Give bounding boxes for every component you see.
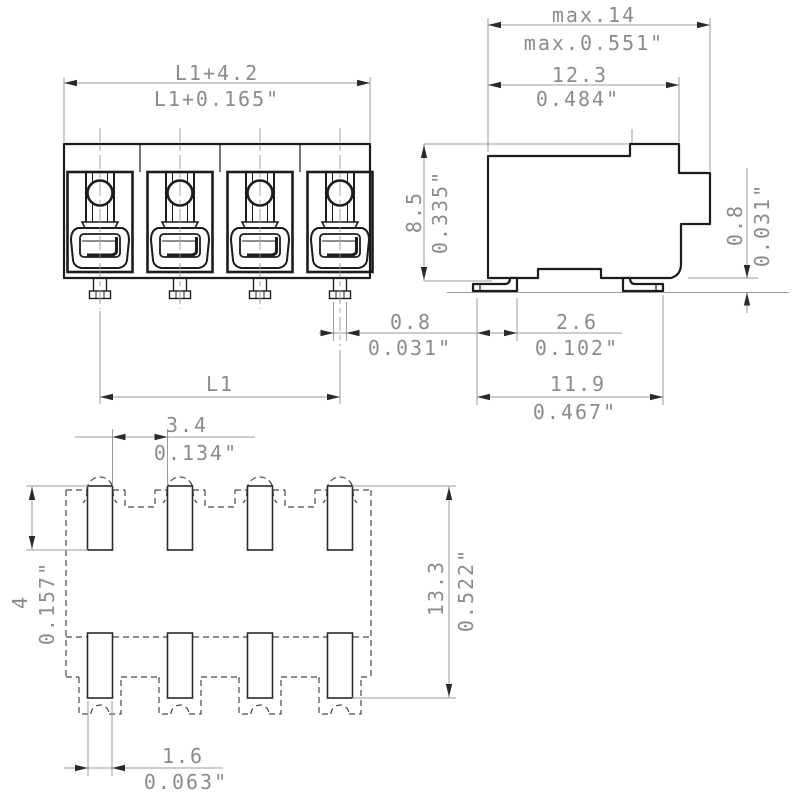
- dim-side-standoff-inch: 0.031": [750, 183, 774, 267]
- fp-pad-top-1: [88, 486, 113, 550]
- dim-side-max-depth-inch: max.0.551": [524, 31, 664, 55]
- front-partition-lines: [140, 144, 300, 172]
- dimension-front-overall: L1+4.2 L1+0.165": [64, 61, 370, 142]
- dim-side-standoff-metric: 0.8: [723, 204, 747, 246]
- drawing-canvas: L1+4.2 L1+0.165" 0.8 0.031" L1: [0, 0, 800, 800]
- front-centerlines: [100, 128, 260, 309]
- dim-front-pin-inch: 0.031": [368, 336, 452, 360]
- dim-side-height-metric: 8.5: [402, 191, 426, 233]
- dim-fp-pad-gap-metric: 3.4: [166, 413, 208, 437]
- fp-notch-2: [205, 490, 235, 507]
- dimension-fp-pad-gap: 3.4 0.134": [75, 413, 255, 486]
- dim-side-foot-width-inch: 0.102": [535, 336, 619, 360]
- fp-pad-bottom-3: [248, 633, 273, 698]
- dimension-front-pin-width: 0.8 0.031": [319, 302, 500, 360]
- footprint-view: 3.4 0.134" 4 0.157" 13.3 0.522" 1.6 0.06…: [8, 413, 478, 794]
- dimension-front-pitch: L1: [100, 311, 340, 404]
- fp-pad-bottom-2: [168, 633, 193, 698]
- side-view: max.14 max.0.551" 12.3 0.484" 8.5 0.335"…: [402, 3, 789, 424]
- dim-side-foot-span-metric: 11.9: [550, 372, 606, 396]
- fp-pad-top-2: [168, 486, 193, 550]
- dimension-side-body-depth: 12.3 0.484": [488, 63, 679, 142]
- dim-fp-pad-height-inch: 0.157": [35, 561, 59, 645]
- dim-front-pin-metric: 0.8: [390, 310, 432, 334]
- dimension-fp-pad-width: 1.6 0.063": [64, 701, 228, 794]
- dimension-fp-pad-height: 4 0.157": [8, 486, 88, 645]
- dim-fp-total-height-metric: 13.3: [424, 560, 448, 616]
- dim-fp-total-height-inch: 0.522": [454, 548, 478, 632]
- technical-drawing: L1+4.2 L1+0.165" 0.8 0.031" L1: [0, 0, 800, 800]
- dim-side-max-depth-metric: max.14: [552, 3, 636, 27]
- fp-notch-1: [125, 490, 155, 507]
- fp-notch-3: [285, 490, 315, 507]
- fp-pad-bottom-4: [328, 633, 353, 698]
- dim-side-foot-span-inch: 0.467": [533, 400, 617, 424]
- fp-pad-top-4: [328, 486, 353, 550]
- dim-fp-pad-height-metric: 4: [8, 595, 32, 609]
- dim-front-overall-metric: L1+4.2: [175, 61, 259, 85]
- dim-fp-pad-width-inch: 0.063": [144, 770, 228, 794]
- fp-pad-top-3: [248, 486, 273, 550]
- dim-side-foot-width-metric: 2.6: [556, 310, 598, 334]
- dim-side-height-inch: 0.335": [428, 170, 452, 254]
- side-right-leg: [623, 278, 663, 291]
- dim-front-pitch-metric: L1: [206, 372, 234, 396]
- dim-fp-pad-width-metric: 1.6: [162, 744, 204, 768]
- dim-side-body-depth-inch: 0.484": [536, 87, 620, 111]
- dim-fp-pad-gap-inch: 0.134": [154, 441, 238, 465]
- side-body-outline: [488, 144, 710, 278]
- dim-side-body-depth-metric: 12.3: [552, 63, 608, 87]
- dim-front-overall-inch: L1+0.165": [154, 87, 280, 111]
- fp-pad-bottom-1: [88, 633, 113, 698]
